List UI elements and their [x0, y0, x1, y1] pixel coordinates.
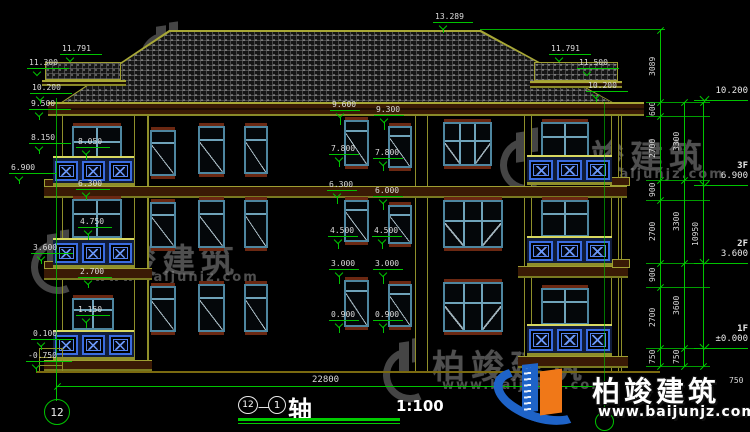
elevation-marker: 8.050 — [78, 138, 102, 146]
balcony-railing — [527, 155, 612, 185]
elevation-marker-value: 0.900 — [375, 310, 399, 319]
railing-lattice-panel — [82, 243, 105, 263]
balcony-railing — [53, 330, 134, 360]
elevation-marker-line — [373, 158, 403, 159]
elevation-marker-line — [577, 68, 619, 69]
floor-label: 3F — [694, 161, 748, 171]
railing-lattice-panel — [557, 329, 581, 351]
elevation-marker-line — [78, 227, 112, 228]
slab-edge-lip — [612, 259, 630, 268]
window — [443, 282, 503, 332]
elevation-marker: 0.100 — [33, 330, 57, 338]
elevation-marker-value: 3.000 — [375, 259, 399, 268]
elevation-marker: 9.300 — [376, 106, 400, 114]
floor-level-marker: 10.200 — [694, 76, 748, 96]
window — [541, 200, 589, 237]
dim-segment-label: 600 — [649, 102, 657, 116]
elevation-marker-leader — [86, 322, 87, 328]
title-axis-bubble-to: 1 — [268, 396, 286, 414]
railing-lattice-panel — [55, 161, 78, 181]
elevation-marker-line — [30, 93, 72, 94]
elevation-marker-leader — [36, 368, 37, 372]
elevation-marker: 9.500 — [31, 100, 55, 108]
title-text: 轴立面图 — [288, 390, 313, 432]
elevation-marker-line — [329, 154, 359, 155]
elevation-marker-value: 4.500 — [330, 226, 354, 235]
elevation-marker-triangle — [66, 54, 74, 62]
elevation-marker-value: 10.200 — [32, 83, 61, 92]
elevation-marker-value: 2.700 — [80, 267, 104, 276]
axis-12-leader — [56, 372, 57, 401]
elevation-marker-value: 11.791 — [62, 44, 91, 53]
title-underline-thin — [238, 423, 400, 424]
elevation-drawing-canvas: 柏竣建筑www.baijunjz.com柏竣建筑www.baijunjz.com… — [0, 0, 750, 432]
elevation-marker-value: 4.750 — [80, 217, 104, 226]
dim-connector-line — [646, 287, 710, 288]
elevation-marker: 6.300 — [78, 180, 102, 188]
railing-lattice-panel — [109, 161, 132, 181]
elevation-marker-leader — [86, 154, 87, 160]
elevation-marker-leader — [340, 117, 341, 125]
elevation-marker-line — [76, 189, 110, 190]
floor-level-line — [694, 185, 748, 186]
elevation-marker: 7.800 — [375, 149, 399, 157]
elevation-marker-value: 11.300 — [29, 58, 58, 67]
elevation-marker: 3.000 — [331, 260, 355, 268]
elevation-marker: 3.600 — [33, 244, 57, 252]
dim-segment-label: 2700 — [649, 116, 657, 180]
elevation-marker: 13.289 — [435, 13, 464, 21]
elevation-marker-line — [76, 315, 110, 316]
wall-pier — [134, 116, 148, 372]
railing-lattice-panel — [109, 243, 132, 263]
elevation-marker-leader — [596, 98, 597, 102]
railing-lattice-panel — [82, 161, 105, 181]
elevation-marker-line — [373, 320, 403, 321]
elevation-marker-leader — [338, 243, 339, 249]
company-logo: 柏竣建筑 www.baijunjz.com — [488, 362, 750, 432]
window — [72, 298, 114, 330]
elevation-marker-line — [31, 253, 73, 254]
elevation-marker-line — [31, 339, 73, 340]
window — [150, 130, 176, 176]
overall-dim-text: 22800 — [312, 375, 339, 385]
floor-level-marker: 3F6.900 — [694, 161, 748, 181]
elevation-marker-value: 3.600 — [33, 243, 57, 252]
elevation-marker-line — [586, 91, 628, 92]
wall-left-wing-line — [148, 116, 149, 372]
floor-label: 2F — [694, 239, 748, 249]
elevation-marker-line — [78, 277, 112, 278]
elevation-marker-value: 4.500 — [374, 226, 398, 235]
elevation-marker-value: 6.000 — [375, 186, 399, 195]
balcony-railing — [527, 324, 612, 356]
elevation-marker: 10.200 — [32, 84, 61, 92]
railing-lattice-panel — [557, 241, 581, 261]
elevation-marker-line — [372, 236, 402, 237]
elevation-marker-leader — [41, 346, 42, 350]
railing-lattice-panel — [529, 160, 553, 180]
elevation-marker-line — [374, 115, 404, 116]
elevation-marker-value: 0.900 — [331, 310, 355, 319]
dim-chain-line — [684, 102, 685, 366]
dim-segment-label: 3600 — [673, 263, 681, 348]
elevation-marker: 1.150 — [78, 306, 102, 314]
elevation-marker-line — [329, 320, 359, 321]
elevation-marker-leader — [382, 243, 383, 249]
elevation-marker: 11.791 — [551, 45, 580, 53]
window — [150, 286, 176, 332]
elevation-marker: 11.500 — [579, 59, 608, 67]
elevation-marker-leader — [88, 284, 89, 288]
elevation-marker: 9.600 — [332, 101, 356, 109]
elevation-marker: 0.900 — [331, 311, 355, 319]
floor-level-line — [694, 263, 748, 264]
elevation-marker: 4.500 — [374, 227, 398, 235]
railing-lattice-panel — [109, 335, 132, 355]
elevation-marker-leader — [384, 122, 385, 130]
elevation-marker-triangle — [33, 68, 41, 76]
floor-level-marker: 2F3.600 — [694, 239, 748, 259]
elevation-marker-value: 6.300 — [329, 180, 353, 189]
elevation-marker-triangle — [555, 54, 563, 62]
elevation-marker-value: 3.000 — [331, 259, 355, 268]
elevation-marker: 3.000 — [375, 260, 399, 268]
window — [198, 126, 225, 174]
elevation-marker-leader — [86, 196, 87, 200]
elevation-marker: 0.900 — [375, 311, 399, 319]
balcony-railing — [527, 236, 612, 266]
window — [388, 126, 412, 168]
railing-lattice-panel — [529, 241, 553, 261]
dim-segment-label: 3089 — [649, 30, 657, 102]
railing-lattice-panel — [82, 335, 105, 355]
elevation-marker-value: 8.150 — [31, 133, 55, 142]
window — [244, 200, 268, 248]
dim-connector-line — [646, 116, 710, 117]
wall-pier — [611, 116, 619, 372]
window — [198, 200, 225, 248]
elevation-marker-value: 7.800 — [331, 144, 355, 153]
dim-segment-label: 2700 — [649, 200, 657, 263]
elevation-marker-line — [29, 143, 71, 144]
elevation-marker-value: 11.791 — [551, 44, 580, 53]
elevation-marker: 8.150 — [31, 134, 55, 142]
ridge-level-line — [480, 29, 665, 30]
elevation-marker: 2.700 — [80, 268, 104, 276]
watermark-logo-bar — [399, 341, 409, 372]
elevation-marker-leader — [383, 327, 384, 333]
elevation-marker-value: 7.800 — [375, 148, 399, 157]
dim-segment-label: 900 — [649, 180, 657, 200]
elevation-marker-line — [373, 269, 403, 270]
dim-connector-line — [646, 200, 710, 201]
railing-lattice-panel — [586, 160, 610, 180]
elevation-marker-line — [328, 236, 358, 237]
elevation-marker-value: 8.050 — [78, 137, 102, 146]
dim-segment-label: 3300 — [673, 180, 681, 263]
floor-label: 1F — [694, 324, 748, 334]
elevation-marker-value: 1.150 — [78, 305, 102, 314]
elevation-marker-leader — [443, 29, 444, 33]
floor-level-marker: 1F±0.000 — [694, 324, 748, 344]
dim-segment-label: 2700 — [649, 287, 657, 348]
railing-lattice-panel — [529, 329, 553, 351]
elevation-marker-value: 9.600 — [332, 100, 356, 109]
title-axis-bubble-from: 12 — [238, 396, 258, 414]
elevation-marker: 6.000 — [375, 187, 399, 195]
elevation-marker-line — [76, 147, 110, 148]
window — [388, 205, 412, 244]
floor-level-line — [694, 348, 748, 349]
elevation-marker-value: 10.200 — [588, 81, 617, 90]
elevation-marker-line — [433, 22, 473, 23]
elevation-marker: 4.750 — [80, 218, 104, 226]
logo-building-icon-2 — [540, 368, 562, 415]
elevation-marker-line — [373, 196, 403, 197]
dim-segment-label: 900 — [649, 263, 657, 287]
elevation-marker-leader — [339, 327, 340, 333]
railing-lattice-panel — [586, 241, 610, 261]
dim-connector-line — [646, 102, 710, 103]
logo-company-url: www.baijunjz.com — [598, 404, 750, 420]
elevation-marker-line — [549, 54, 591, 55]
wall-pier — [415, 116, 428, 372]
window — [198, 284, 225, 332]
elevation-marker-line — [27, 68, 69, 69]
window — [443, 122, 492, 166]
axis-bubble-12: 12 — [44, 399, 70, 425]
window — [150, 202, 176, 248]
floor-level-line — [694, 100, 748, 101]
elevation-marker-leader — [39, 150, 40, 154]
elevation-marker-value: 0.100 — [33, 329, 57, 338]
elevation-marker-line — [330, 110, 360, 111]
elevation-marker-leader — [337, 197, 338, 204]
elevation-marker-value: 9.300 — [376, 105, 400, 114]
title-scale: 1:100 — [396, 397, 444, 415]
window — [244, 284, 268, 332]
elevation-marker-leader — [41, 260, 42, 264]
elevation-marker: 6.300 — [329, 181, 353, 189]
elevation-marker: 4.500 — [330, 227, 354, 235]
railing-lattice-panel — [557, 160, 581, 180]
window — [443, 200, 503, 248]
elevation-marker-leader — [383, 165, 384, 171]
railing-lattice-panel — [586, 329, 610, 351]
logo-building-icon — [522, 363, 538, 413]
elevation-marker-line — [26, 361, 72, 362]
elevation-marker-line — [29, 109, 71, 110]
elevation-marker-line — [60, 54, 102, 55]
elevation-marker-leader — [39, 116, 40, 120]
elevation-marker-line — [327, 190, 357, 191]
elevation-marker-leader — [383, 203, 384, 210]
elevation-marker: 7.800 — [331, 145, 355, 153]
elevation-marker: 11.300 — [29, 59, 58, 67]
elevation-marker: 11.791 — [62, 45, 91, 53]
window — [541, 288, 589, 325]
elevation-marker-leader — [339, 161, 340, 167]
title-underline-thick — [238, 418, 400, 421]
window — [244, 126, 268, 174]
elevation-marker-leader — [339, 276, 340, 284]
elevation-marker-leader — [88, 234, 89, 240]
elevation-marker: 6.900 — [11, 164, 35, 172]
elevation-marker-value: 13.289 — [435, 12, 464, 21]
elevation-marker-leader — [19, 180, 20, 184]
elevation-marker-line — [329, 269, 359, 270]
elevation-marker-value: 9.500 — [31, 99, 55, 108]
wall-right-edge — [621, 116, 622, 372]
elevation-marker-value: 6.300 — [78, 179, 102, 188]
elevation-marker-value: 11.500 — [579, 58, 608, 67]
window — [344, 120, 369, 166]
dim-segment-label: 3300 — [673, 102, 681, 180]
elevation-marker: -0.750 — [28, 352, 57, 360]
elevation-marker-value: -0.750 — [28, 351, 57, 360]
elevation-marker-leader — [383, 276, 384, 284]
elevation-marker: 10.200 — [588, 82, 617, 90]
elevation-marker-value: 6.900 — [11, 163, 35, 172]
slab-edge-lip — [610, 177, 630, 186]
